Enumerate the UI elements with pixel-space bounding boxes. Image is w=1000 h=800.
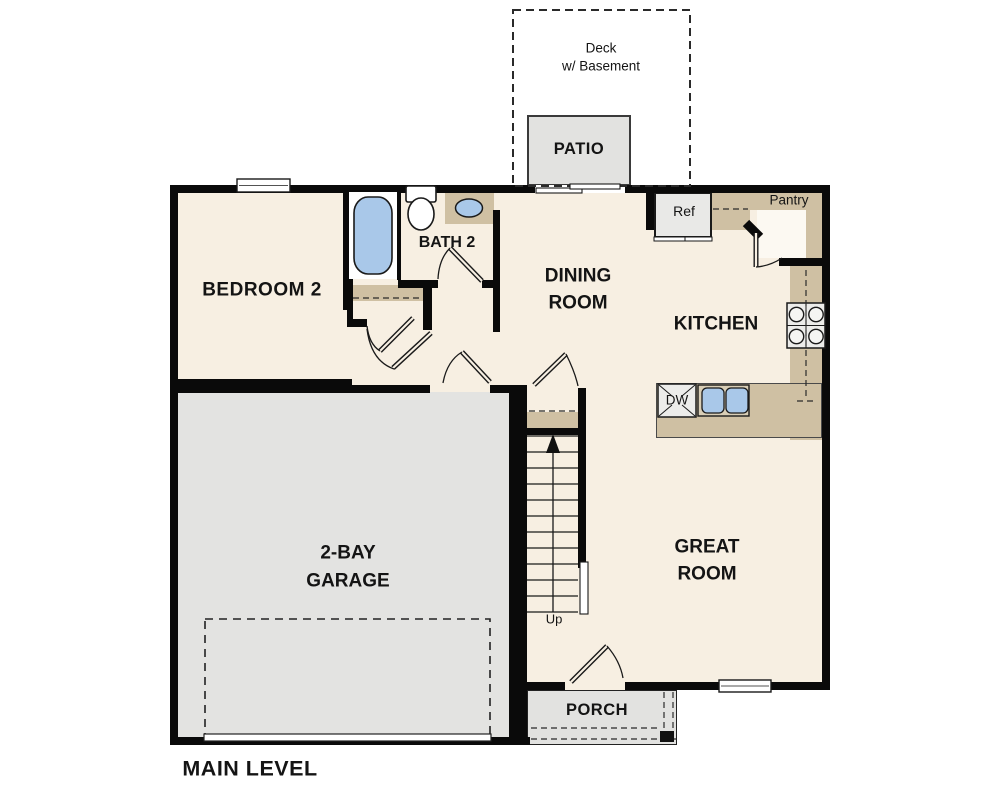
kitchen-peninsula-counter bbox=[656, 383, 822, 438]
wall-stairwell-right bbox=[578, 388, 586, 568]
pantry-label: Pantry bbox=[769, 193, 808, 207]
bath-vanity-counter bbox=[445, 192, 494, 224]
wall-stairwell-left bbox=[509, 385, 527, 745]
great-room-label-line1: GREAT bbox=[674, 538, 739, 557]
wall-garage-top-a bbox=[178, 385, 430, 393]
front-door-opening bbox=[565, 682, 625, 690]
wall-closet-right bbox=[423, 282, 432, 330]
wall-bath-bottom-a bbox=[398, 280, 438, 288]
patio-door-opening bbox=[535, 185, 625, 193]
garage-floor bbox=[178, 392, 509, 737]
wall-exterior-right bbox=[822, 185, 830, 690]
wall-coat-closet-bottom bbox=[527, 428, 578, 435]
floor-plan-canvas: Deck w/ Basement PATIO BEDROOM 2 BATH 2 … bbox=[0, 0, 1000, 800]
patio-label: PATIO bbox=[554, 141, 604, 158]
wall-exterior-bottom-garage bbox=[170, 737, 530, 745]
wall-pantry-bottom bbox=[779, 258, 822, 266]
garage-label-line1: 2-BAY bbox=[320, 544, 375, 563]
wall-closet-stub bbox=[347, 319, 367, 327]
wall-exterior-top bbox=[170, 185, 830, 193]
wall-tub-divider bbox=[397, 192, 401, 280]
dishwasher-label: DW bbox=[666, 393, 689, 407]
kitchen-label: KITCHEN bbox=[674, 315, 758, 334]
wall-dining-left bbox=[493, 210, 500, 332]
stairs-up-label: Up bbox=[546, 613, 563, 626]
plan-title: MAIN LEVEL bbox=[182, 758, 317, 780]
deck-label-line1: Deck bbox=[586, 41, 617, 55]
wall-ref-stub bbox=[646, 192, 654, 230]
deck-label-line2: w/ Basement bbox=[562, 59, 640, 73]
porch-label: PORCH bbox=[566, 702, 628, 719]
garage-label-line2: GARAGE bbox=[306, 572, 389, 591]
pantry-interior bbox=[757, 210, 806, 258]
bath2-label: BATH 2 bbox=[419, 235, 476, 251]
dining-room-label-line2: ROOM bbox=[548, 294, 607, 313]
great-room-label-line2: ROOM bbox=[677, 565, 736, 584]
coat-closet-shelf bbox=[527, 412, 578, 428]
bedroom2-label: BEDROOM 2 bbox=[202, 281, 322, 300]
wall-exterior-left bbox=[170, 185, 178, 745]
dining-room-label-line1: DINING bbox=[545, 267, 612, 286]
refrigerator-label: Ref bbox=[673, 204, 695, 218]
kitchen-corner-counter bbox=[711, 192, 750, 230]
